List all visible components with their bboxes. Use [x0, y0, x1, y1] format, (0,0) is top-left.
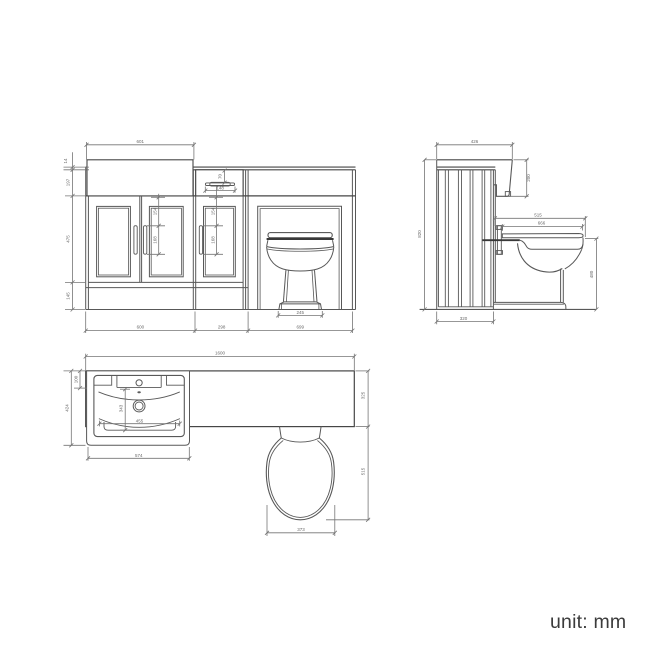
svg-text:320: 320 [460, 316, 468, 321]
svg-text:245: 245 [297, 310, 305, 315]
svg-text:455: 455 [136, 418, 144, 423]
svg-text:475: 475 [66, 235, 71, 243]
svg-text:1600: 1600 [215, 351, 226, 356]
svg-text:154: 154 [210, 207, 215, 215]
svg-text:148: 148 [216, 185, 224, 190]
svg-text:197: 197 [66, 178, 71, 186]
svg-text:70: 70 [218, 174, 223, 180]
svg-text:820: 820 [417, 230, 422, 238]
svg-text:298: 298 [218, 325, 226, 330]
svg-text:424: 424 [65, 404, 70, 412]
svg-text:426: 426 [471, 139, 479, 144]
svg-text:154: 154 [153, 207, 158, 215]
svg-text:699: 699 [296, 325, 304, 330]
svg-text:168: 168 [210, 236, 215, 244]
svg-text:600: 600 [137, 325, 145, 330]
svg-text:168: 168 [153, 236, 158, 244]
svg-text:515: 515 [534, 212, 542, 217]
svg-text:200: 200 [526, 174, 531, 182]
svg-text:666: 666 [538, 221, 546, 226]
svg-text:343: 343 [118, 404, 123, 412]
svg-text:100: 100 [73, 375, 78, 383]
svg-text:325: 325 [361, 391, 366, 399]
svg-text:480: 480 [589, 270, 594, 278]
svg-text:373: 373 [297, 527, 305, 532]
svg-text:601: 601 [136, 139, 144, 144]
svg-text:515: 515 [361, 467, 366, 475]
svg-text:145: 145 [66, 292, 71, 300]
svg-text:14: 14 [63, 158, 68, 164]
svg-text:574: 574 [135, 453, 143, 458]
